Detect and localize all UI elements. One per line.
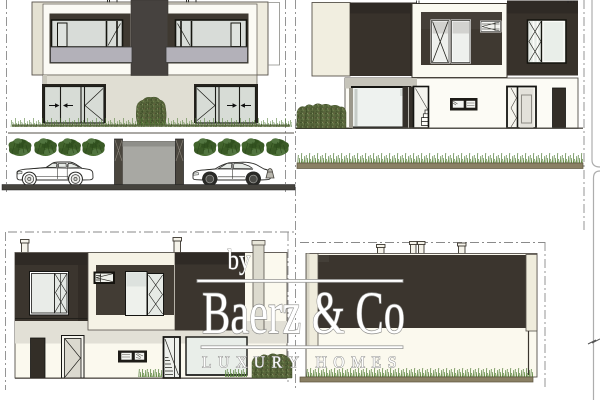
svg-text:LUXURY HOMES: LUXURY HOMES xyxy=(202,353,403,372)
svg-text:Baerz & Co: Baerz & Co xyxy=(202,280,405,346)
svg-text:by: by xyxy=(228,244,251,276)
